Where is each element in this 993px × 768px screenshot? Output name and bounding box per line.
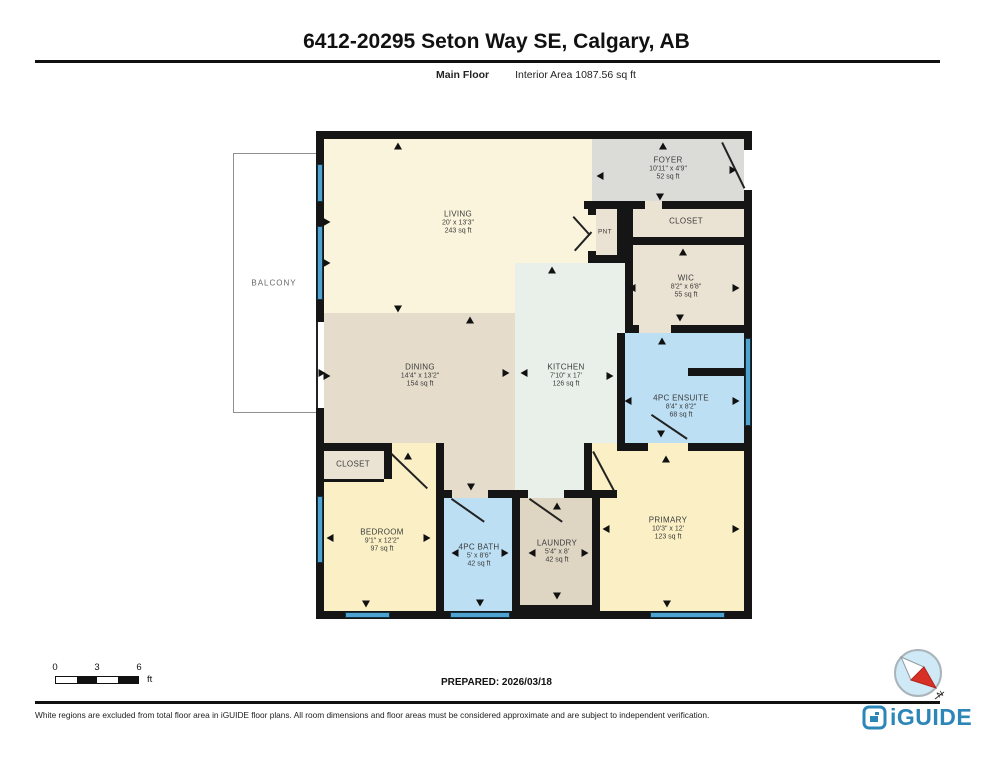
direction-arrow-icon bbox=[662, 456, 670, 463]
direction-arrow-icon bbox=[733, 284, 740, 292]
wall-segment bbox=[520, 605, 592, 611]
room-label-dining: DINING 14'4" x 13'2" 154 sq ft bbox=[401, 363, 439, 388]
direction-arrow-icon bbox=[679, 249, 687, 256]
direction-arrow-icon bbox=[503, 369, 510, 377]
room-label-wic: WIC 8'2" x 6'8" 55 sq ft bbox=[671, 274, 702, 299]
direction-arrow-icon bbox=[659, 143, 667, 150]
floor-plan-page: { "header": { "title": "6412-20295 Seton… bbox=[0, 0, 993, 768]
direction-arrow-icon bbox=[733, 397, 740, 405]
footer-divider bbox=[35, 701, 940, 704]
iguide-logo-text: iGUIDE bbox=[890, 704, 972, 731]
room-ensuite bbox=[625, 333, 744, 443]
window bbox=[317, 164, 323, 202]
window bbox=[745, 338, 751, 426]
room-label-closet-bottom: CLOSET bbox=[336, 460, 370, 469]
scale-tick-0: 0 bbox=[52, 662, 57, 673]
window bbox=[317, 496, 323, 563]
room-label-bedroom: BEDROOM 9'1" x 12'2" 97 sq ft bbox=[360, 528, 403, 553]
scale-tick-3: 3 bbox=[94, 662, 99, 673]
direction-arrow-icon bbox=[597, 172, 604, 180]
direction-arrow-icon bbox=[733, 525, 740, 533]
direction-arrow-icon bbox=[629, 284, 636, 292]
direction-arrow-icon bbox=[362, 601, 370, 608]
scale-tick-6: 6 bbox=[136, 662, 141, 673]
room-label-living: LIVING 20' x 13'3" 243 sq ft bbox=[442, 210, 474, 235]
window bbox=[650, 612, 725, 618]
direction-arrow-icon bbox=[466, 317, 474, 324]
wall-segment bbox=[688, 368, 744, 376]
wall-segment bbox=[662, 201, 744, 209]
direction-arrow-icon bbox=[548, 267, 556, 274]
prepared-date: PREPARED: 2026/03/18 bbox=[0, 677, 993, 688]
direction-arrow-icon bbox=[452, 549, 459, 557]
direction-arrow-icon bbox=[603, 525, 610, 533]
direction-arrow-icon bbox=[324, 259, 331, 267]
window bbox=[345, 612, 390, 618]
wall-segment bbox=[625, 443, 648, 451]
direction-arrow-icon bbox=[424, 534, 431, 542]
wall-segment bbox=[436, 443, 444, 611]
direction-arrow-icon bbox=[404, 453, 412, 460]
direction-arrow-icon bbox=[657, 431, 665, 438]
window bbox=[450, 612, 510, 618]
direction-arrow-icon bbox=[324, 218, 331, 226]
wall-segment bbox=[316, 443, 392, 451]
window bbox=[317, 226, 323, 300]
room-label-laundry: LAUNDRY 5'4" x 8' 42 sq ft bbox=[537, 539, 577, 564]
direction-arrow-icon bbox=[676, 315, 684, 322]
direction-arrow-icon bbox=[553, 593, 561, 600]
wall-segment bbox=[688, 443, 744, 451]
direction-arrow-icon bbox=[327, 534, 334, 542]
direction-arrow-icon bbox=[521, 369, 528, 377]
direction-arrow-icon bbox=[658, 338, 666, 345]
wall-segment bbox=[564, 490, 617, 498]
direction-arrow-icon bbox=[663, 601, 671, 608]
room-label-closet-top: CLOSET bbox=[669, 217, 703, 226]
wall-segment bbox=[625, 325, 639, 333]
wall-segment bbox=[625, 209, 633, 333]
room-label-bath: 4PC BATH 5' x 8'6" 42 sq ft bbox=[459, 543, 500, 568]
wall-segment bbox=[588, 255, 625, 263]
iguide-logo: iGUIDE bbox=[862, 704, 972, 731]
direction-arrow-icon bbox=[625, 397, 632, 405]
door-swing-line bbox=[316, 322, 318, 408]
wall-segment bbox=[588, 201, 596, 215]
wall-opening bbox=[744, 150, 752, 190]
wall-segment bbox=[324, 479, 384, 482]
direction-arrow-icon bbox=[730, 166, 737, 174]
room-label-kitchen: KITCHEN 7'10" x 17' 126 sq ft bbox=[547, 363, 584, 388]
direction-arrow-icon bbox=[656, 194, 664, 201]
direction-arrow-icon bbox=[553, 503, 561, 510]
wall-segment bbox=[512, 490, 520, 611]
direction-arrow-icon bbox=[394, 306, 402, 313]
direction-arrow-icon bbox=[529, 549, 536, 557]
direction-arrow-icon bbox=[607, 372, 614, 380]
direction-arrow-icon bbox=[582, 549, 589, 557]
disclaimer-text: White regions are excluded from total fl… bbox=[35, 710, 709, 720]
room-label-primary: PRIMARY 10'3" x 12' 123 sq ft bbox=[649, 516, 687, 541]
balcony-label: BALCONY bbox=[251, 279, 296, 288]
room-label-foyer: FOYER 10'11" x 4'9" 52 sq ft bbox=[649, 156, 687, 181]
iguide-logo-icon bbox=[862, 705, 887, 730]
direction-arrow-icon bbox=[476, 600, 484, 607]
wall-segment bbox=[488, 490, 528, 498]
direction-arrow-icon bbox=[502, 549, 509, 557]
direction-arrow-icon bbox=[467, 484, 475, 491]
direction-arrow-icon bbox=[324, 372, 331, 380]
direction-arrow-icon bbox=[394, 143, 402, 150]
room-label-ensuite: 4PC ENSUITE 8'4" x 8'2" 68 sq ft bbox=[653, 394, 709, 419]
wall-segment bbox=[592, 490, 600, 611]
wall-segment bbox=[671, 325, 744, 333]
wall-segment bbox=[625, 237, 744, 245]
floor-plan: LIVING 20' x 13'3" 243 sq ft FOYER 10'11… bbox=[0, 0, 993, 768]
room-label-pantry: PNT bbox=[598, 229, 612, 236]
wall-segment bbox=[617, 333, 625, 451]
compass-icon: N bbox=[888, 646, 952, 706]
